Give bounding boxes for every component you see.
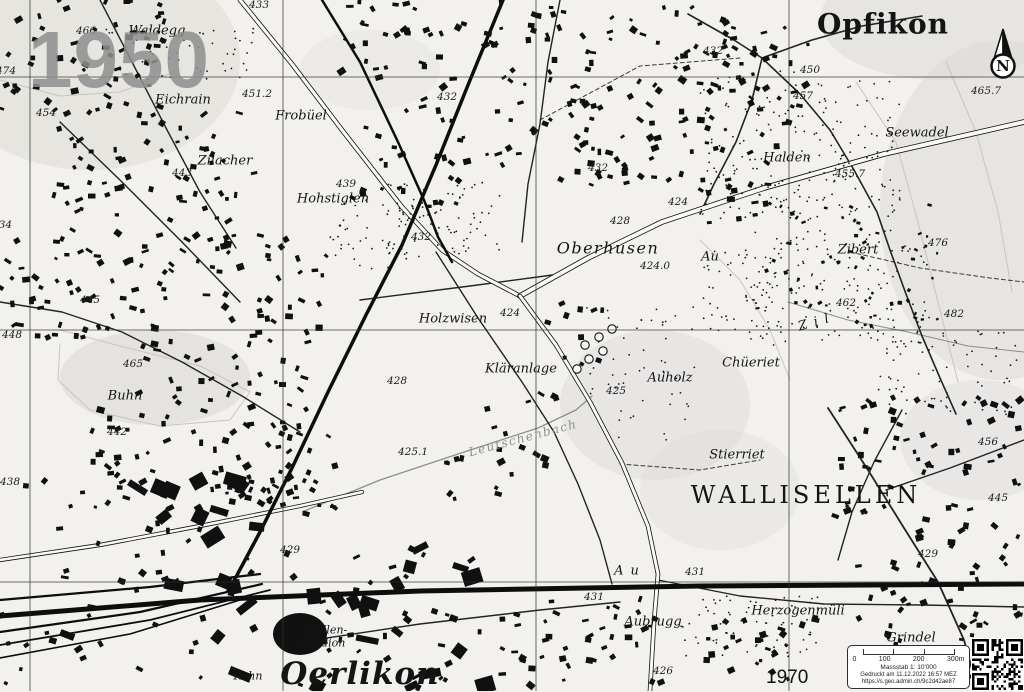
tree-dot — [798, 287, 800, 289]
qr-module — [991, 646, 993, 648]
building — [523, 82, 527, 86]
tree-dot — [403, 235, 405, 237]
building — [223, 234, 230, 241]
qr-module — [1011, 658, 1013, 660]
qr-module — [1021, 654, 1023, 656]
tree-dot — [934, 398, 936, 400]
tree-dot — [427, 214, 429, 216]
tree-dot — [415, 233, 417, 235]
building — [265, 244, 271, 249]
treatment-tank — [599, 347, 607, 355]
qr-module — [972, 680, 974, 682]
tree-dot — [825, 100, 827, 102]
tree-dot — [720, 623, 722, 625]
building — [843, 506, 852, 514]
building — [6, 641, 11, 646]
building — [591, 146, 595, 150]
building — [411, 541, 429, 555]
building — [958, 585, 964, 591]
building — [529, 126, 539, 135]
tree-dot — [790, 217, 792, 219]
qr-module — [972, 654, 974, 656]
qr-module — [982, 688, 984, 690]
building — [739, 62, 743, 66]
building — [640, 625, 649, 633]
tree-dot — [886, 283, 888, 285]
building — [705, 107, 711, 113]
tree-dot — [855, 312, 857, 314]
tree-dot — [882, 98, 884, 100]
tree-dot — [246, 69, 248, 71]
building — [1002, 543, 1008, 550]
tree-dot — [832, 134, 834, 136]
building — [229, 498, 236, 505]
qr-module — [979, 678, 981, 680]
tree-dot — [697, 642, 699, 644]
tree-dot — [802, 261, 804, 263]
tree-dot — [778, 253, 780, 255]
tree-dot — [836, 121, 838, 123]
tree-dot — [946, 407, 948, 409]
building — [500, 162, 506, 168]
building — [759, 659, 763, 662]
qr-module — [991, 644, 993, 646]
tree-dot — [388, 184, 390, 186]
building — [727, 196, 735, 202]
building — [225, 197, 229, 201]
building — [162, 269, 168, 275]
tree-dot — [883, 273, 885, 275]
building — [183, 236, 191, 242]
building — [44, 300, 50, 304]
tree-dot — [775, 206, 777, 208]
tree-dot — [440, 209, 442, 211]
tree-dot — [785, 113, 787, 115]
tree-dot — [722, 87, 724, 89]
building — [210, 487, 214, 493]
tree-dot — [845, 179, 847, 181]
building — [627, 93, 634, 100]
building — [131, 287, 139, 293]
building — [168, 268, 174, 274]
tree-dot — [781, 211, 783, 213]
tree-dot — [946, 366, 948, 368]
tree-dot — [352, 248, 354, 250]
qr-module — [1016, 666, 1018, 668]
building — [74, 333, 79, 339]
qr-module — [982, 673, 984, 675]
tree-dot — [623, 337, 625, 339]
tree-dot — [876, 97, 878, 99]
building — [674, 56, 679, 61]
building — [325, 609, 331, 615]
tree-dot — [848, 267, 850, 269]
qr-module — [1011, 639, 1013, 641]
building — [39, 611, 45, 614]
tree-dot — [774, 184, 776, 186]
building — [662, 5, 666, 10]
building — [221, 302, 230, 311]
tree-dot — [499, 195, 501, 197]
building — [682, 133, 687, 138]
tree-dot — [239, 40, 241, 42]
building — [649, 121, 655, 126]
qr-module — [991, 641, 993, 643]
tree-dot — [778, 321, 780, 323]
tree-dot — [887, 318, 889, 320]
tree-dot — [719, 600, 721, 602]
tree-dot — [741, 156, 743, 158]
tree-dot — [750, 212, 752, 214]
qr-module — [996, 644, 998, 646]
tree-dot — [773, 344, 775, 346]
tree-dot — [452, 193, 454, 195]
tree-dot — [702, 599, 704, 601]
building — [223, 471, 247, 489]
tree-dot — [768, 327, 770, 329]
building — [295, 255, 301, 262]
qr-module — [999, 646, 1001, 648]
tree-dot — [615, 387, 617, 389]
qr-module — [974, 673, 976, 675]
building — [579, 32, 586, 40]
qr-module — [1021, 651, 1023, 653]
tree-dot — [371, 268, 373, 270]
building — [771, 258, 776, 262]
tree-dot — [715, 602, 717, 604]
tree-dot — [360, 240, 362, 242]
qr-module — [979, 661, 981, 663]
building — [710, 82, 718, 88]
tree-dot — [768, 297, 770, 299]
qr-module — [1004, 688, 1006, 690]
building — [79, 655, 87, 662]
tree-dot — [712, 287, 714, 289]
building — [251, 171, 258, 175]
tree-dot — [838, 335, 840, 337]
tree-dot — [639, 370, 641, 372]
building — [421, 552, 426, 558]
building — [726, 53, 730, 58]
building — [723, 128, 727, 132]
tree-dot — [835, 168, 837, 170]
building — [731, 26, 736, 30]
tree-dot — [448, 229, 450, 231]
building — [265, 253, 271, 259]
qr-module — [987, 654, 989, 656]
tree-dot — [405, 224, 407, 226]
building — [698, 187, 704, 193]
tree-dot — [728, 81, 730, 83]
building — [375, 133, 382, 139]
tree-dot — [794, 606, 796, 608]
building — [176, 386, 182, 391]
tree-dot — [897, 380, 899, 382]
building — [590, 307, 598, 313]
tree-dot — [703, 267, 705, 269]
tree-dot — [736, 168, 738, 170]
tree-dot — [399, 207, 401, 209]
tree-dot — [730, 193, 732, 195]
qr-module — [977, 666, 979, 668]
tree-dot — [890, 378, 892, 380]
tree-dot — [392, 248, 394, 250]
building — [270, 477, 275, 483]
building — [353, 554, 361, 560]
building — [249, 624, 258, 633]
building — [298, 297, 306, 303]
building — [690, 149, 694, 154]
building — [9, 276, 14, 281]
tree-dot — [459, 197, 461, 199]
building — [296, 423, 301, 430]
building — [272, 483, 280, 489]
building — [568, 112, 574, 119]
building — [673, 65, 678, 70]
building — [657, 678, 665, 686]
building — [427, 205, 431, 208]
building — [963, 463, 972, 470]
tree-dot — [869, 265, 871, 267]
tree-dot — [707, 610, 709, 612]
qr-module — [984, 658, 986, 660]
tree-dot — [710, 328, 712, 330]
qr-module — [974, 639, 976, 641]
tree-dot — [498, 249, 500, 251]
building — [597, 104, 604, 111]
building — [401, 188, 406, 194]
tree-dot — [799, 596, 801, 598]
tree-dot — [879, 318, 881, 320]
tree-dot — [618, 419, 620, 421]
building — [266, 487, 270, 494]
tree-dot — [332, 239, 334, 241]
building — [145, 525, 154, 533]
qr-module — [972, 685, 974, 687]
road-major-casing — [0, 492, 362, 560]
tree-dot — [399, 210, 401, 212]
tree-dot — [768, 124, 770, 126]
building — [652, 82, 658, 88]
tree-dot — [995, 355, 997, 357]
building — [921, 318, 925, 321]
tree-dot — [710, 183, 712, 185]
building — [548, 77, 553, 83]
tree-dot — [213, 30, 215, 32]
building — [584, 127, 589, 133]
building — [453, 497, 457, 502]
tree-dot — [892, 336, 894, 338]
building — [330, 505, 336, 508]
building — [708, 651, 715, 658]
tree-dot — [900, 340, 902, 342]
tree-dot — [799, 651, 801, 653]
tree-dot — [898, 104, 900, 106]
tree-dot — [817, 608, 819, 610]
tree-dot — [382, 240, 384, 242]
tree-dot — [809, 632, 811, 634]
tree-dot — [243, 63, 245, 65]
tree-dot — [853, 310, 855, 312]
building — [208, 398, 213, 402]
qr-module — [1008, 668, 1010, 670]
tree-dot — [618, 437, 620, 439]
building — [796, 103, 803, 108]
tree-dot — [981, 385, 983, 387]
stadium-building — [273, 613, 327, 655]
tree-dot — [765, 257, 767, 259]
building — [636, 116, 644, 124]
building — [582, 619, 589, 623]
tree-dot — [825, 107, 827, 109]
building — [747, 150, 754, 156]
building — [700, 178, 705, 183]
tree-dot — [795, 131, 797, 133]
qr-module — [1013, 644, 1015, 646]
tree-dot — [618, 383, 620, 385]
tree-dot — [365, 199, 367, 201]
tree-dot — [861, 327, 863, 329]
qr-module — [1018, 685, 1020, 687]
tree-dot — [476, 228, 478, 230]
qr-module — [974, 688, 976, 690]
tree-dot — [393, 243, 395, 245]
qr-module — [977, 646, 979, 648]
tree-dot — [835, 101, 837, 103]
tree-dot — [823, 112, 825, 114]
qr-module — [1001, 668, 1003, 670]
qr-module — [974, 654, 976, 656]
tree-dot — [716, 639, 718, 641]
tree-dot — [725, 104, 727, 106]
tree-dot — [955, 341, 957, 343]
tree-dot — [234, 31, 236, 33]
tree-dot — [844, 162, 846, 164]
tree-dot — [866, 157, 868, 159]
tree-dot — [415, 238, 417, 240]
tree-dot — [722, 654, 724, 656]
building — [755, 637, 761, 643]
building — [916, 561, 921, 568]
building — [135, 553, 140, 558]
tree-dot — [850, 176, 852, 178]
tree-dot — [791, 323, 793, 325]
building — [898, 638, 903, 643]
building — [769, 43, 778, 51]
tree-dot — [791, 623, 793, 625]
qr-module — [1021, 666, 1023, 668]
tree-dot — [776, 285, 778, 287]
tree-dot — [466, 238, 468, 240]
building — [286, 448, 293, 454]
building — [210, 265, 216, 269]
qr-module — [977, 649, 979, 651]
building — [731, 187, 738, 193]
tree-dot — [713, 599, 715, 601]
building — [689, 5, 694, 10]
building — [168, 339, 172, 345]
building — [730, 36, 738, 41]
tree-dot — [402, 214, 404, 216]
tree-dot — [891, 309, 893, 311]
building — [736, 216, 742, 222]
qr-module — [1013, 646, 1015, 648]
tree-dot — [727, 264, 729, 266]
building — [185, 538, 191, 544]
tree-dot — [728, 612, 730, 614]
tree-dot — [750, 338, 752, 340]
tree-dot — [886, 348, 888, 350]
qr-module — [1021, 641, 1023, 643]
tree-dot — [761, 294, 763, 296]
tree-dot — [795, 292, 797, 294]
tree-dot — [481, 212, 483, 214]
building — [96, 259, 104, 267]
building — [881, 504, 886, 510]
building — [545, 37, 550, 41]
building — [198, 378, 204, 384]
tree-dot — [675, 378, 677, 380]
tree-dot — [1014, 345, 1016, 347]
building — [204, 189, 209, 194]
tree-dot — [895, 341, 897, 343]
tree-dot — [607, 310, 609, 312]
tree-dot — [869, 234, 871, 236]
tree-dot — [924, 310, 926, 312]
building — [655, 86, 663, 95]
building — [88, 194, 96, 199]
building — [893, 435, 900, 441]
tree-dot — [798, 265, 800, 267]
building — [854, 265, 858, 270]
building — [629, 25, 638, 34]
tree-dot — [754, 284, 756, 286]
tree-dot — [765, 306, 767, 308]
tree-dot — [942, 332, 944, 334]
building — [58, 321, 63, 328]
compare-year-label: 1970 — [766, 667, 808, 689]
treatment-tank — [581, 341, 589, 349]
qr-module — [972, 688, 974, 690]
hill-shade — [640, 430, 800, 550]
tree-dot — [774, 276, 776, 278]
tree-dot — [780, 155, 782, 157]
tree-dot — [636, 327, 638, 329]
tree-dot — [889, 117, 891, 119]
tree-dot — [463, 188, 465, 190]
building — [764, 160, 771, 166]
tree-dot — [878, 389, 880, 391]
building — [862, 465, 868, 469]
building — [445, 613, 450, 617]
building — [875, 232, 879, 235]
tree-dot — [387, 267, 389, 269]
tree-dot — [847, 316, 849, 318]
building — [75, 197, 84, 203]
tree-dot — [750, 601, 752, 603]
qr-module — [996, 651, 998, 653]
qr-module — [984, 654, 986, 656]
tree-dot — [715, 171, 717, 173]
building — [713, 146, 719, 151]
building — [18, 267, 24, 270]
building — [871, 291, 874, 294]
building — [947, 539, 955, 546]
qr-module — [982, 646, 984, 648]
qr-module — [979, 673, 981, 675]
building — [503, 431, 508, 437]
building — [704, 125, 711, 132]
